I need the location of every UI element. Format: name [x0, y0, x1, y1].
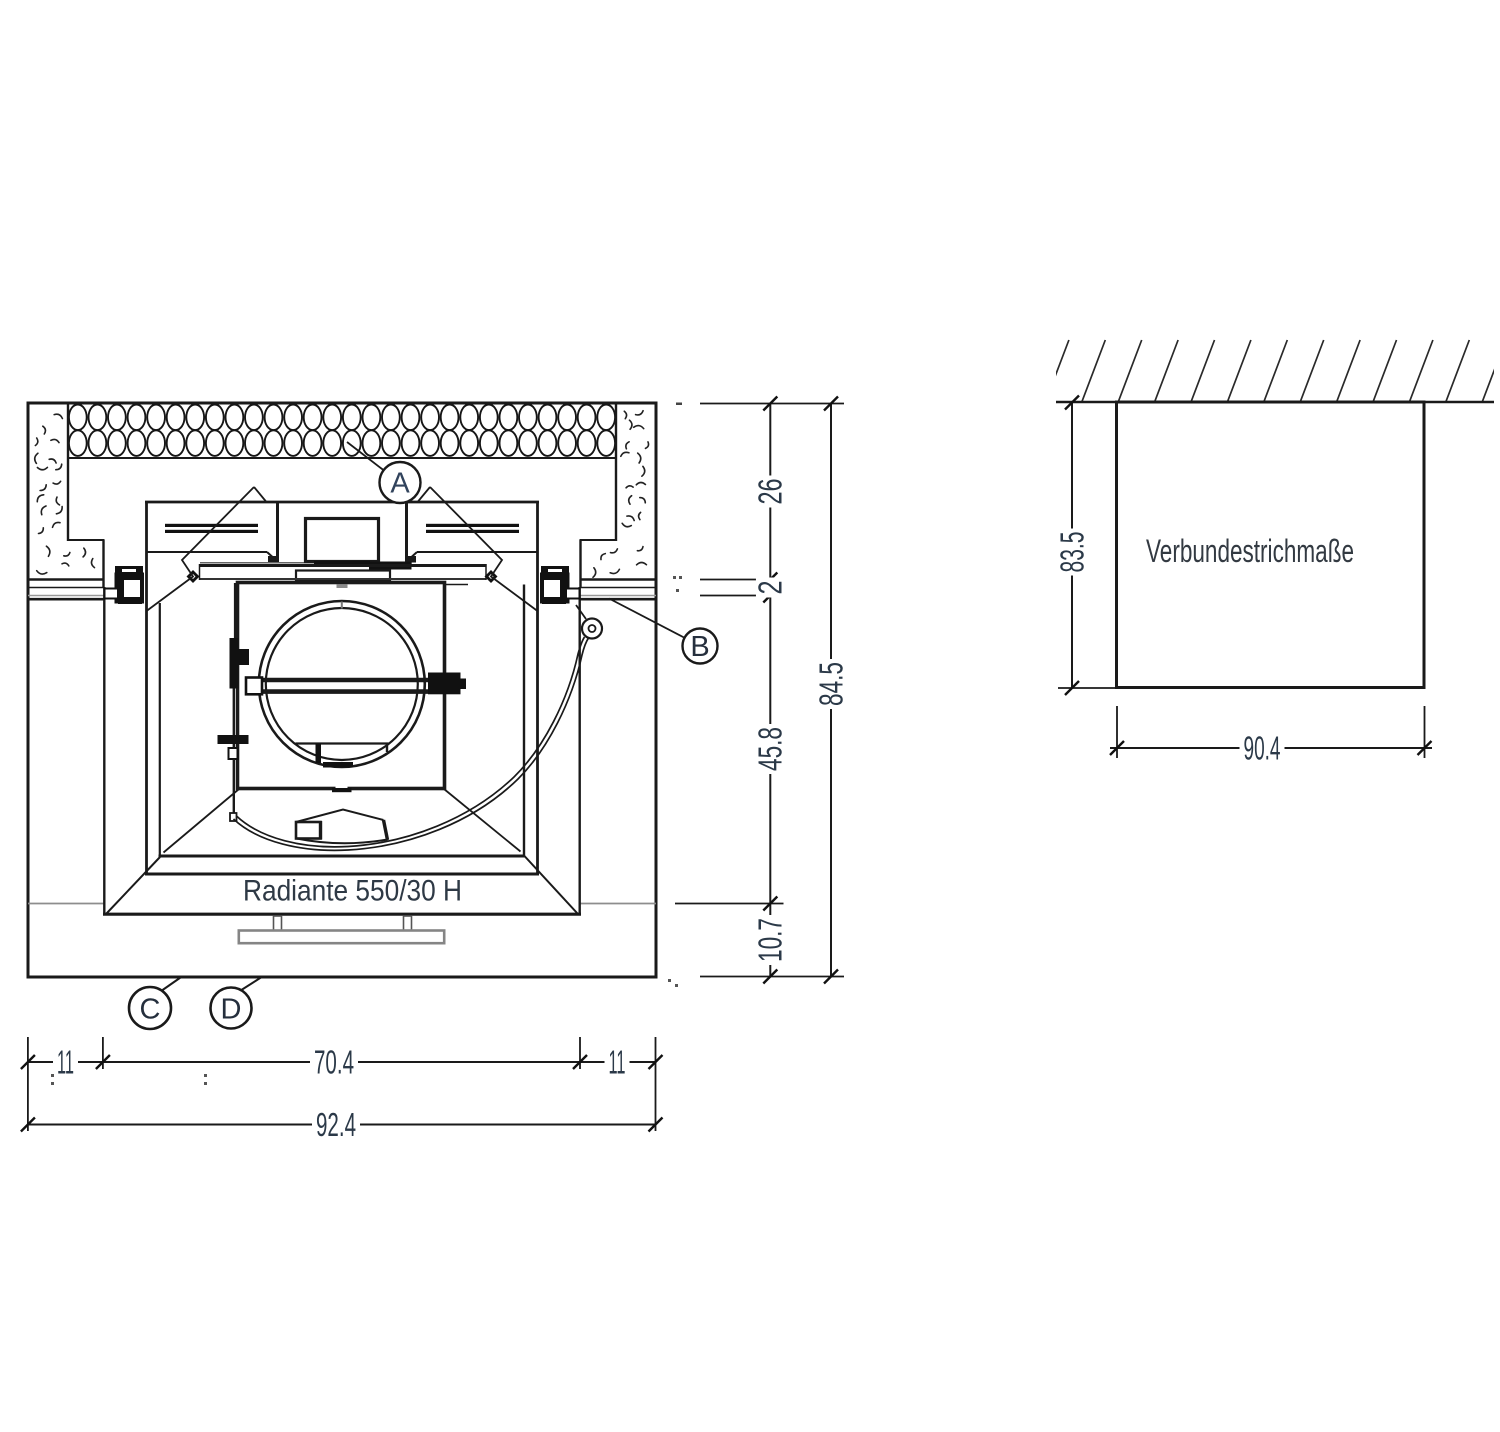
svg-text:Verbundestrichmaße: Verbundestrichmaße	[1146, 533, 1354, 569]
svg-text:26: 26	[752, 479, 789, 505]
svg-text:2: 2	[752, 581, 789, 595]
svg-text:90.4: 90.4	[1244, 729, 1281, 766]
svg-text:70.4: 70.4	[314, 1043, 354, 1080]
svg-text:C: C	[140, 994, 161, 1026]
svg-text:A: A	[390, 468, 410, 500]
svg-text:B: B	[690, 631, 709, 663]
svg-text:10.7: 10.7	[752, 918, 789, 962]
svg-text:Radiante 550/30 H: Radiante 550/30 H	[243, 875, 462, 908]
svg-text:92.4: 92.4	[316, 1106, 356, 1143]
svg-text:D: D	[221, 994, 242, 1026]
svg-text:11: 11	[609, 1043, 626, 1080]
svg-text:45.8: 45.8	[752, 727, 789, 771]
svg-text:83.5: 83.5	[1053, 532, 1090, 573]
svg-text:11: 11	[57, 1043, 74, 1080]
svg-text:84.5: 84.5	[812, 662, 849, 706]
